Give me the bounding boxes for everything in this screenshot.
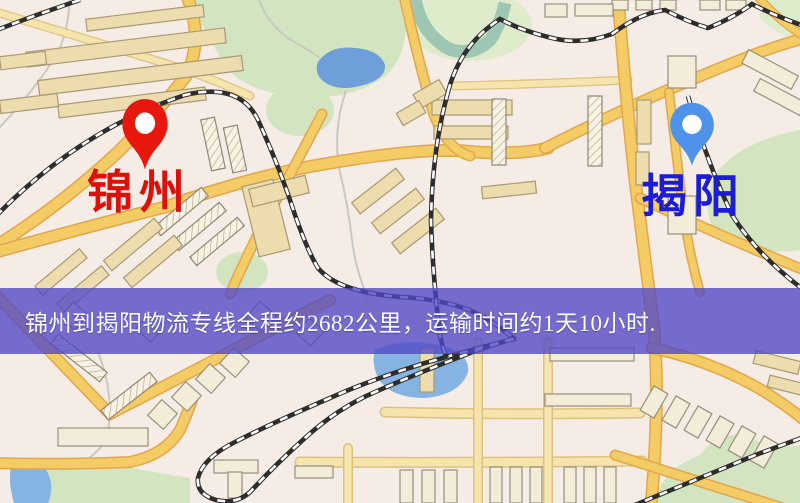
- route-info-text: 锦州到揭阳物流专线全程约2682公里，运输时间约1天10小时.: [25, 304, 656, 338]
- logistics-route-map: 锦州 揭阳 锦州到揭阳物流专线全程约2682公里，运输时间约1天10小时.: [0, 0, 800, 503]
- origin-city-label: 锦州: [87, 170, 191, 216]
- origin-pin-icon: [118, 96, 172, 172]
- destination-city-label: 揭阳: [641, 174, 745, 220]
- destination-pin-icon: [666, 100, 718, 168]
- route-info-banner: 锦州到揭阳物流专线全程约2682公里，运输时间约1天10小时.: [0, 288, 800, 354]
- map-background: [0, 0, 800, 503]
